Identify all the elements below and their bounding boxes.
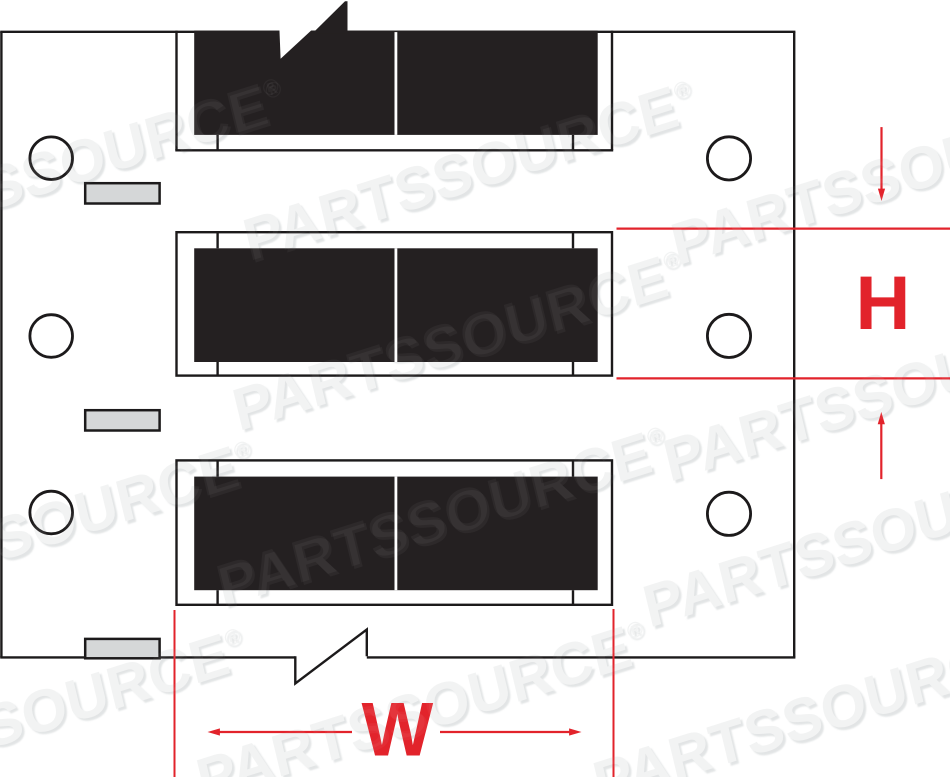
svg-text:H: H — [855, 261, 910, 346]
